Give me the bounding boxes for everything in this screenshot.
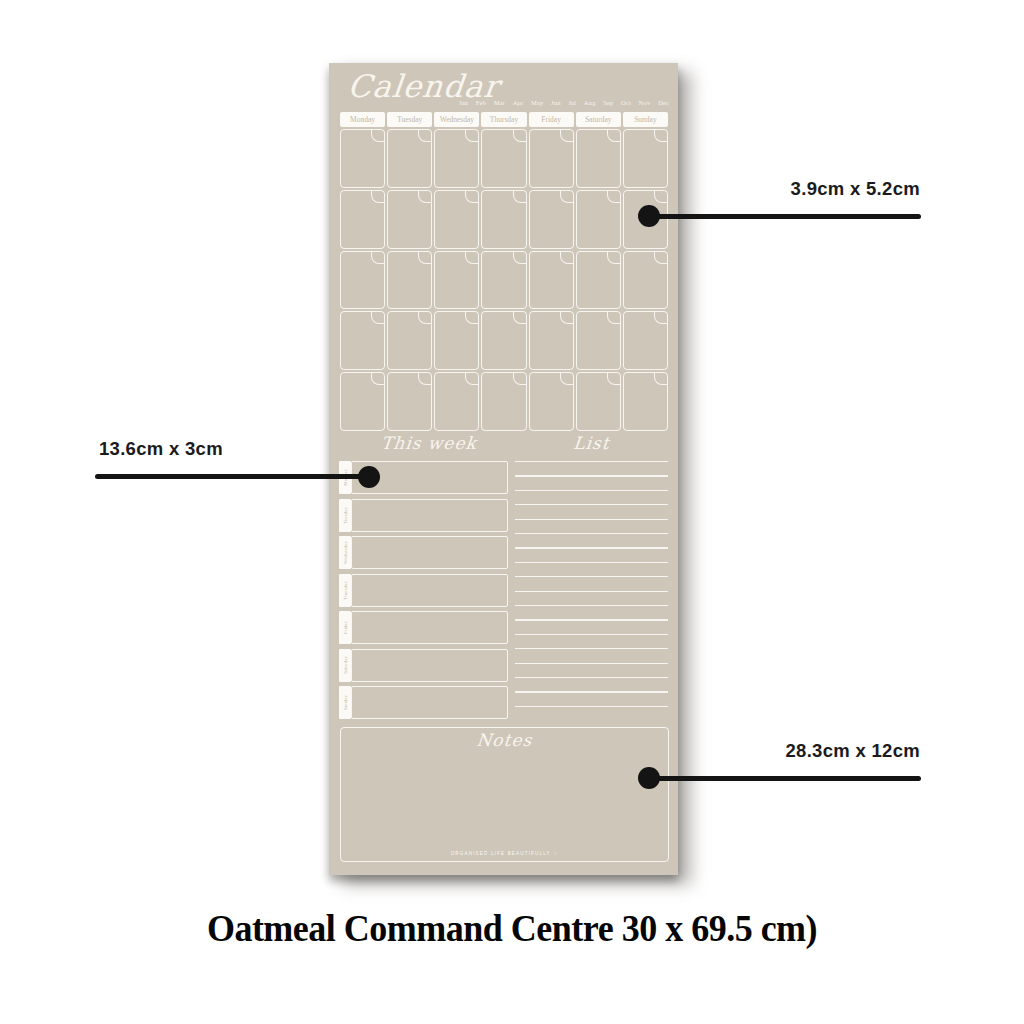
calendar-day-cell <box>481 190 526 249</box>
callout-line <box>649 776 921 781</box>
week-day-tab: Sunday <box>339 686 351 719</box>
calendar-day-cell <box>623 311 668 370</box>
week-day-label: Saturday <box>343 656 348 674</box>
day-header-label: Friday <box>541 115 561 124</box>
calendar-day-cell <box>481 251 526 310</box>
brand-wordmark: ORGANISED LIFE BEAUTIFULLY ♡ <box>341 851 668 856</box>
day-header-monday: Monday <box>340 112 385 127</box>
month-label: Apr <box>513 99 524 106</box>
this-week-title: This week <box>349 433 509 453</box>
week-row-writing-area <box>351 536 508 569</box>
week-day-tab: Saturday <box>339 649 351 682</box>
calendar-day-cell <box>434 251 479 310</box>
calendar-day-cell <box>340 190 385 249</box>
week-day-label: Wednesday <box>343 541 348 564</box>
calendar-day-cell <box>623 129 668 188</box>
calendar-day-cell <box>576 311 621 370</box>
month-label: Aug <box>584 99 596 106</box>
callout-dot <box>638 767 660 789</box>
calendar-day-cell <box>481 129 526 188</box>
week-row-writing-area <box>351 686 508 719</box>
calendar-day-cell <box>576 251 621 310</box>
notes-title: Notes <box>340 730 669 750</box>
month-label: Oct <box>621 99 631 106</box>
this-week-row-sunday: Sunday <box>339 686 508 719</box>
calendar-day-cell <box>340 129 385 188</box>
calendar-day-cell <box>529 129 574 188</box>
week-day-label: Thursday <box>343 581 348 600</box>
notes-box: Notes ORGANISED LIFE BEAUTIFULLY ♡ <box>340 727 669 862</box>
week-day-tab: Wednesday <box>339 536 351 569</box>
this-week-rows: MondayTuesdayWednesdayThursdayFridaySatu… <box>339 461 508 719</box>
day-header-sunday: Sunday <box>623 112 668 127</box>
calendar-day-cell <box>481 372 526 431</box>
week-row-writing-area <box>351 574 508 607</box>
callout-line <box>95 474 369 479</box>
day-header-label: Sunday <box>634 115 657 124</box>
dimension-label-day-cell: 3.9cm x 5.2cm <box>791 178 920 200</box>
this-week-row-tuesday: Tuesday <box>339 499 508 532</box>
calendar-day-cell <box>434 190 479 249</box>
day-header-label: Saturday <box>585 115 612 124</box>
week-row-writing-area <box>351 649 508 682</box>
dimension-label-notes: 28.3cm x 12cm <box>785 740 920 762</box>
calendar-day-cell <box>387 251 432 310</box>
day-header-label: Monday <box>350 115 375 124</box>
callout-dot <box>638 205 660 227</box>
callout-line <box>649 214 921 219</box>
monthly-calendar-grid <box>340 129 668 431</box>
this-week-row-friday: Friday <box>339 611 508 644</box>
calendar-day-cell <box>434 311 479 370</box>
product-dimension-diagram: { "planner": { "title_script": "Calendar… <box>0 0 1024 1024</box>
calendar-day-cell <box>529 190 574 249</box>
calendar-day-cell <box>623 251 668 310</box>
months-row: JanFebMarAprMayJunJulAugSepOctNovDec <box>459 97 669 107</box>
list-title: List <box>514 433 669 453</box>
calendar-day-cell <box>481 311 526 370</box>
product-caption: Oatmeal Command Centre 30 x 69.5 cm) <box>0 907 1024 951</box>
month-label: Jul <box>568 99 576 106</box>
calendar-day-cell <box>387 129 432 188</box>
day-header-saturday: Saturday <box>576 112 621 127</box>
calendar-day-cell <box>387 372 432 431</box>
month-label: Sep <box>603 99 613 106</box>
week-row-writing-area <box>351 611 508 644</box>
month-label: Jan <box>459 99 468 106</box>
calendar-day-cell <box>340 251 385 310</box>
calendar-day-cell <box>576 190 621 249</box>
calendar-day-cell <box>529 311 574 370</box>
calendar-day-cell <box>529 251 574 310</box>
month-label: Feb <box>476 99 486 106</box>
week-day-label: Tuesday <box>343 507 348 524</box>
calendar-day-cell <box>387 190 432 249</box>
this-week-row-wednesday: Wednesday <box>339 536 508 569</box>
month-label: May <box>531 99 544 106</box>
month-label: Jun <box>551 99 561 106</box>
week-day-tab: Thursday <box>339 574 351 607</box>
calendar-day-cell <box>529 372 574 431</box>
week-day-label: Sunday <box>343 695 348 710</box>
week-day-label: Friday <box>343 621 348 634</box>
calendar-day-cell <box>434 129 479 188</box>
calendar-day-cell <box>340 372 385 431</box>
week-row-writing-area <box>351 499 508 532</box>
month-label: Mar <box>494 99 505 106</box>
day-header-friday: Friday <box>529 112 574 127</box>
day-header-thursday: Thursday <box>481 112 526 127</box>
planner-board: Calendar JanFebMarAprMayJunJulAugSepOctN… <box>329 63 678 875</box>
calendar-day-cell <box>434 372 479 431</box>
this-week-row-thursday: Thursday <box>339 574 508 607</box>
day-header-label: Wednesday <box>440 115 474 124</box>
calendar-day-cell <box>576 372 621 431</box>
day-header-wednesday: Wednesday <box>434 112 479 127</box>
month-label: Dec <box>658 99 669 106</box>
dimension-label-week-row: 13.6cm x 3cm <box>99 438 223 460</box>
day-header-label: Tuesday <box>397 115 422 124</box>
this-week-row-saturday: Saturday <box>339 649 508 682</box>
day-headers-row: MondayTuesdayWednesdayThursdayFridaySatu… <box>340 112 668 127</box>
calendar-day-cell <box>576 129 621 188</box>
callout-dot <box>358 466 380 488</box>
list-ruled-lines <box>515 461 668 720</box>
day-header-tuesday: Tuesday <box>387 112 432 127</box>
calendar-day-cell <box>340 311 385 370</box>
day-header-label: Thursday <box>490 115 518 124</box>
month-label: Nov <box>639 99 651 106</box>
week-day-tab: Friday <box>339 611 351 644</box>
calendar-day-cell <box>623 372 668 431</box>
week-day-tab: Tuesday <box>339 499 351 532</box>
calendar-day-cell <box>387 311 432 370</box>
